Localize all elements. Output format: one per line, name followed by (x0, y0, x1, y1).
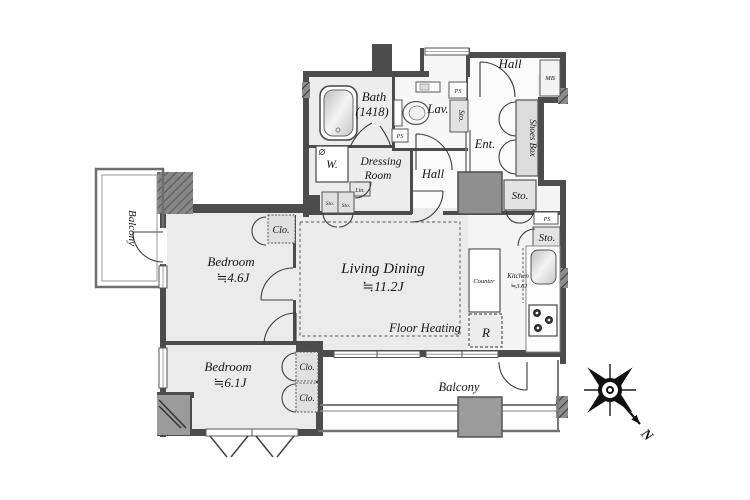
balcony-bottom-floor (320, 357, 560, 433)
balcony-left-label: Balcony (126, 210, 138, 246)
linen-label: Lin. (354, 188, 365, 194)
living-dining-label: Living Dining (340, 261, 425, 277)
washer-tap-icon (319, 149, 325, 155)
ps-right-label: PS (543, 217, 551, 223)
compass-icon: N (584, 364, 656, 445)
pillar (458, 172, 502, 214)
bedroom1-size-label: ≒4.6J (217, 270, 251, 285)
bedroom1-label: Bedroom (207, 254, 254, 269)
kitchen-size-label: ≒3.6J (511, 283, 529, 290)
bath-label: Bath (362, 89, 387, 104)
balcony-block (458, 397, 502, 437)
closet2a-label: Clo. (299, 362, 314, 372)
bedroom2-label: Bedroom (204, 359, 251, 374)
sto-small-a-label: Sto. (326, 201, 334, 207)
refrigerator-label: R (481, 325, 490, 340)
entrance-label: Ent. (474, 137, 495, 151)
sto-ent-label: Sto. (512, 190, 529, 202)
floor-plan: N Bath (1418) Lav. Hall MB PS Sto. Ent. … (0, 0, 750, 500)
floor-heating-label: Floor Heating (388, 321, 461, 335)
sto-top-label: Sto. (457, 110, 466, 122)
counter-label: Counter (473, 278, 495, 285)
kitchen-label: Kitchen (506, 272, 529, 280)
sto-kitchen-label: Sto. (539, 232, 556, 244)
closet1-label: Clo. (273, 225, 290, 236)
bedroom2-size-label: ≒6.1J (214, 375, 248, 390)
living-dining-size-label: ≒11.2J (362, 280, 404, 295)
ps-mid-label: PS (396, 134, 404, 140)
compass-north-label: N (637, 426, 656, 445)
lav-label: Lav. (427, 102, 449, 116)
bathtub-icon (320, 86, 357, 140)
lav-alcove-floor (423, 52, 470, 78)
hall-inner-label: Hall (421, 167, 445, 181)
dressing-room-label-1: Dressing (359, 156, 401, 168)
sto-small-b-label: Sto. (342, 203, 350, 209)
floor-plan-drawing: N Bath (1418) Lav. Hall MB PS Sto. Ent. … (0, 0, 750, 500)
stove-icon (529, 305, 557, 336)
ps-top-label: PS (454, 89, 462, 95)
bath-size-label: (1418) (355, 105, 388, 119)
bay-windows-bedroom2 (206, 429, 298, 457)
kitchen-sink-icon (531, 250, 556, 284)
mail-box-label: MB (544, 75, 554, 82)
dressing-room-label-2: Room (364, 170, 392, 182)
closet2b-label: Clo. (299, 393, 314, 403)
balcony-left-door-opening (159, 228, 167, 264)
washer-label: W. (326, 159, 337, 171)
hall-upper-label: Hall (497, 56, 522, 71)
shoes-box-label: Shoes Box (528, 119, 538, 156)
balcony-bottom-label: Balcony (439, 380, 480, 394)
